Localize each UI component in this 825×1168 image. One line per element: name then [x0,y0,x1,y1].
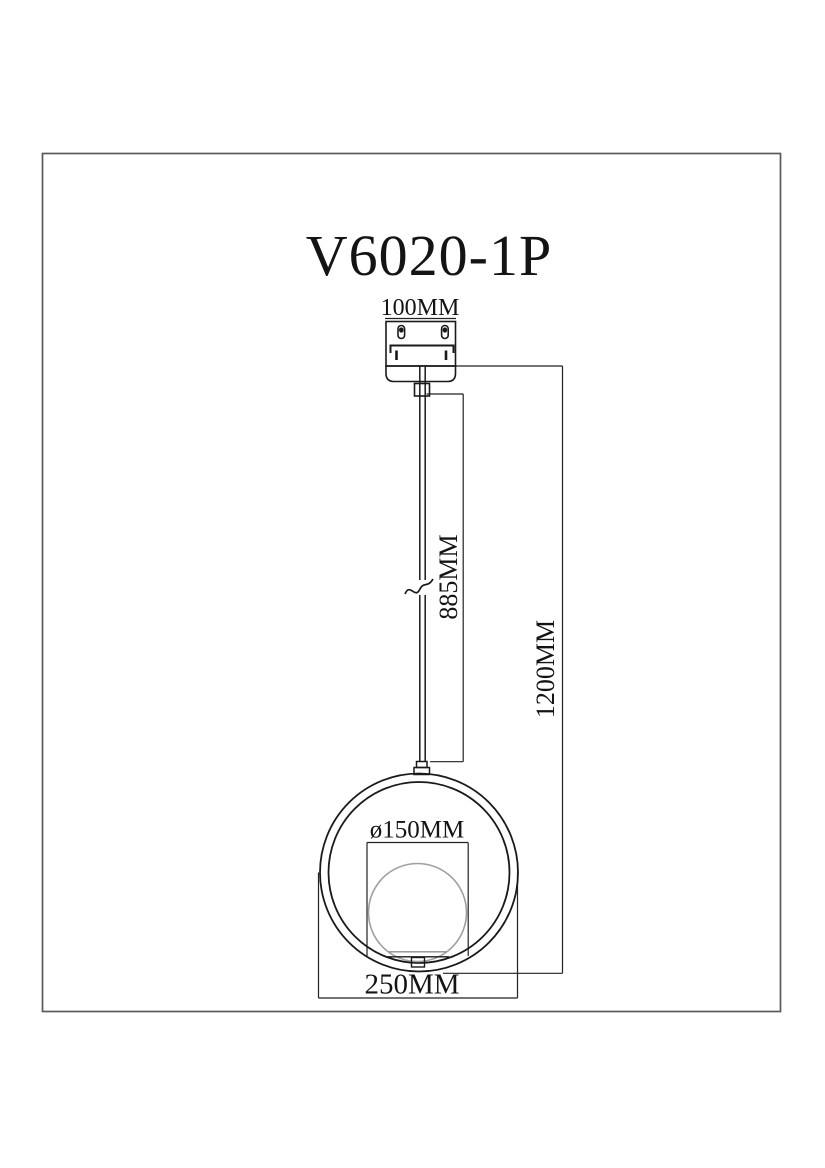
dim-label-ring-width: 250MM [364,971,459,1000]
model-title: V6020-1P [306,227,552,285]
ceiling-canopy [386,322,456,397]
ring-outer-circle [320,774,518,972]
dimension-lines [319,319,563,999]
dim-label-overall-height: 1200MM [533,620,559,718]
canopy-body [386,366,456,382]
dim-150mm-line [367,843,468,957]
dim-label-cord-length: 885MM [436,534,462,619]
break-symbol [405,579,433,594]
suspension-rod [405,366,433,762]
lamp-ring [320,774,518,972]
keyhole-hole-left [399,327,404,332]
keyhole-hole-right [443,327,448,332]
dim-label-globe-diameter: ø150MM [370,818,464,843]
mounting-bracket [391,346,454,354]
dim-label-canopy-width: 100MM [381,296,460,320]
ring-inner-circle [329,782,510,963]
ring-connector [414,762,430,775]
glass-globe [369,864,467,962]
drawing-sheet: V6020-1P 100MM 885MM 1200MM ø150MM 250MM [0,0,825,1168]
